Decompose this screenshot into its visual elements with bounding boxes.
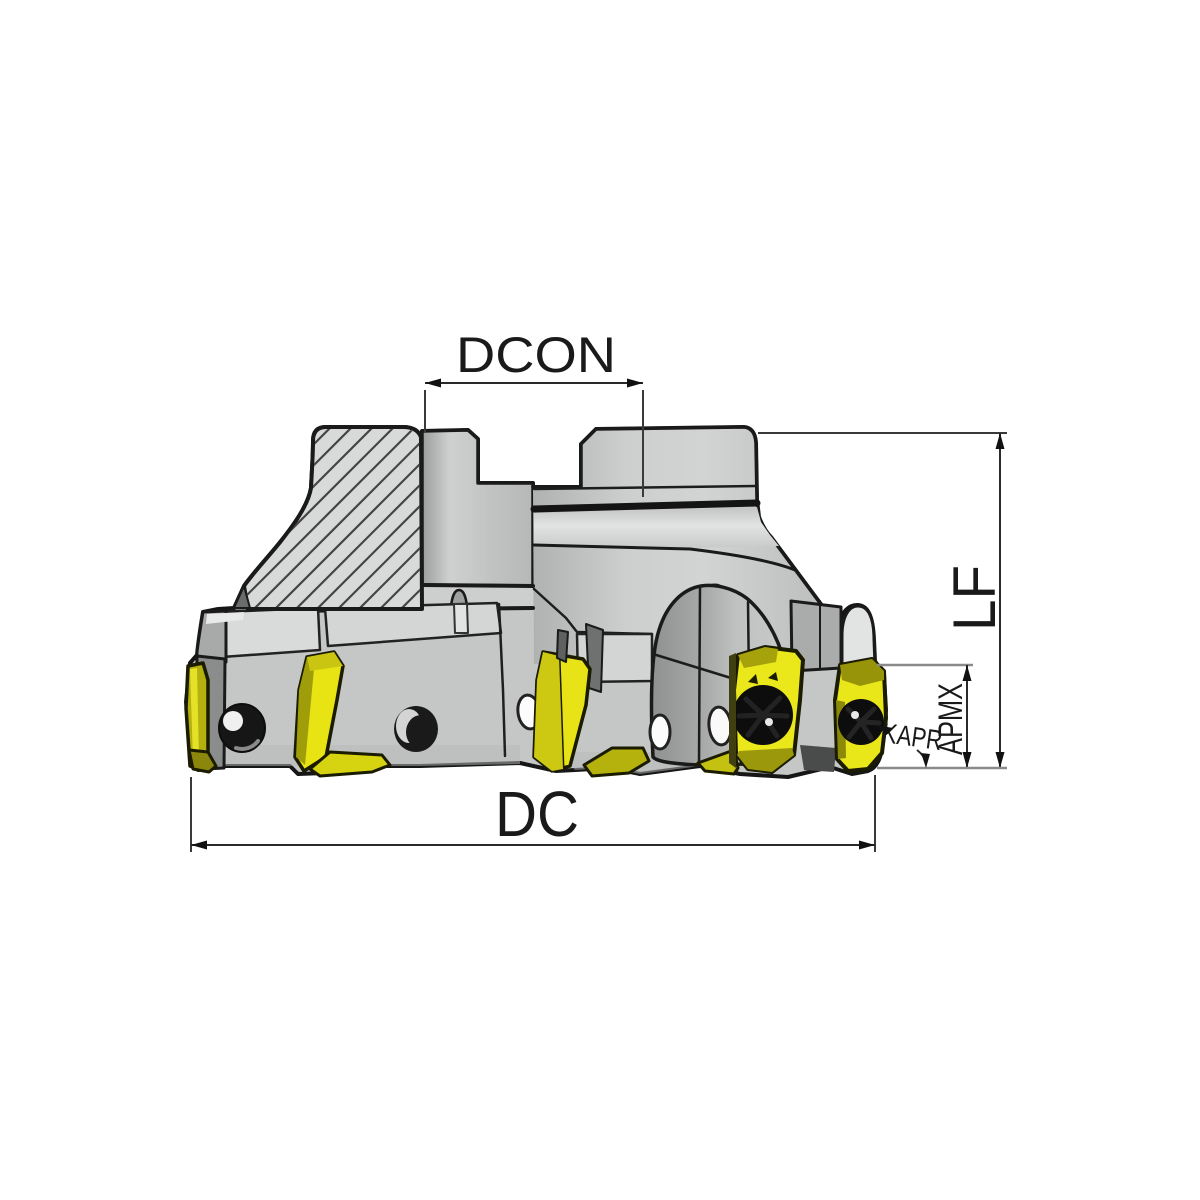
svg-text:DC: DC xyxy=(495,778,579,850)
svg-text:DCON: DCON xyxy=(456,327,616,383)
svg-text:LF: LF xyxy=(941,565,1008,631)
